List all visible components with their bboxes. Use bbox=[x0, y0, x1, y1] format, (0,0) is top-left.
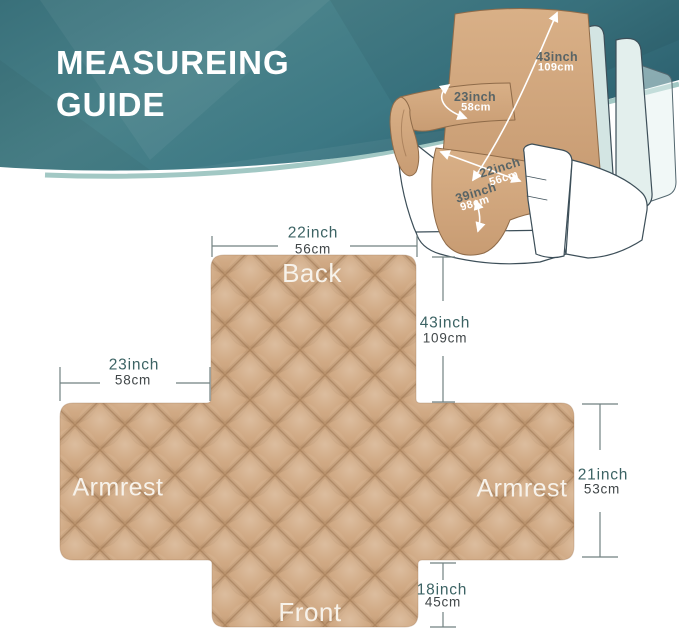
page-title-line1: MEASUREING bbox=[56, 42, 290, 84]
page-title: MEASUREING GUIDE bbox=[56, 42, 290, 126]
back-panel-label: Back bbox=[282, 260, 342, 286]
chair-armrest-width-cm: 58cm bbox=[461, 103, 491, 114]
dim-armrest-height-cm: 53cm bbox=[584, 482, 620, 496]
dim-back-width-inch: 22inch bbox=[288, 225, 338, 241]
dim-front-height-cm: 45cm bbox=[425, 595, 461, 609]
dim-armrest-width-inch: 23inch bbox=[109, 357, 159, 373]
chair-back-height-cm: 109cm bbox=[538, 63, 574, 74]
measuring-guide-infographic: MEASUREING GUIDE 43inch 109cm 23inch 58c… bbox=[0, 0, 679, 631]
page-title-line2: GUIDE bbox=[56, 84, 290, 126]
dim-back-height-cm: 109cm bbox=[423, 331, 468, 345]
dim-back-height-inch: 43inch bbox=[420, 315, 470, 331]
armrest-right-panel-label: Armrest bbox=[477, 477, 568, 502]
dim-back-width-cm: 56cm bbox=[295, 242, 331, 256]
cover-cross-shape bbox=[60, 255, 574, 627]
dim-armrest-width-cm: 58cm bbox=[115, 373, 151, 387]
armrest-left-panel-label: Armrest bbox=[73, 476, 164, 501]
front-panel-label: Front bbox=[278, 599, 341, 625]
